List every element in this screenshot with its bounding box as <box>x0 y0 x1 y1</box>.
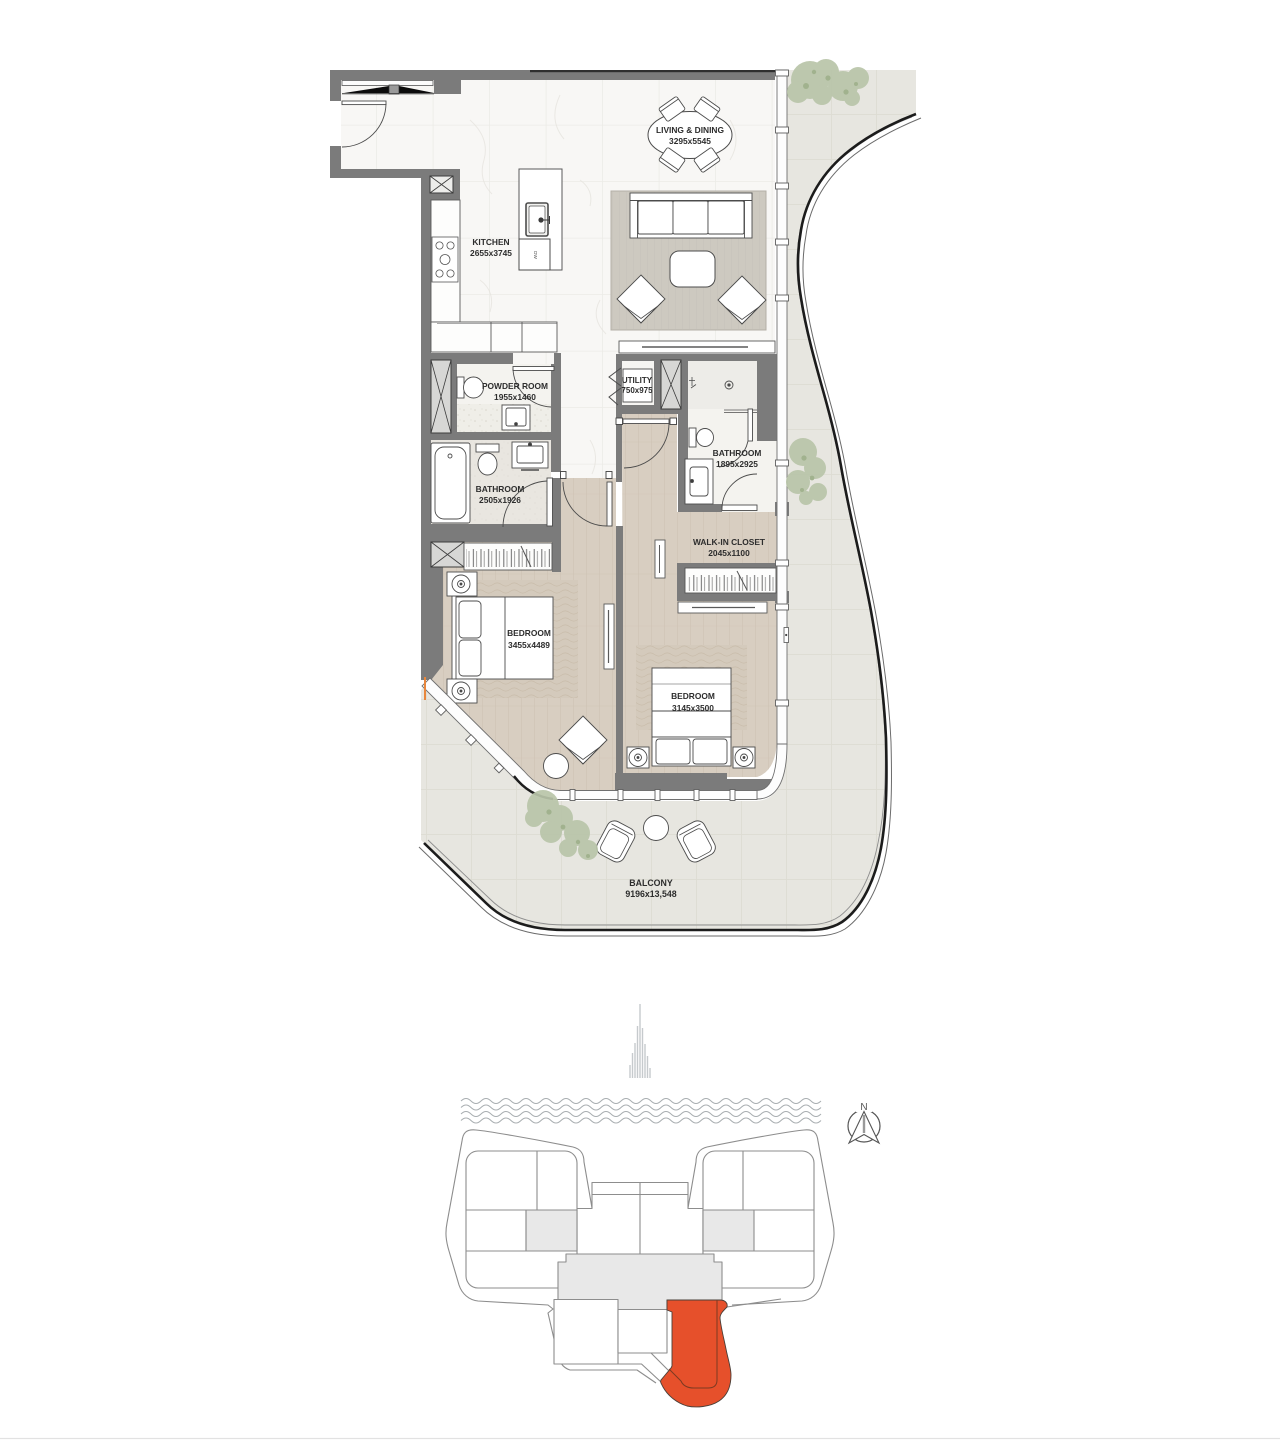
svg-text:750x975: 750x975 <box>621 386 653 395</box>
svg-text:3455x4489: 3455x4489 <box>508 640 550 650</box>
svg-text:BATHROOM: BATHROOM <box>476 484 525 494</box>
svg-text:DW: DW <box>533 251 538 259</box>
svg-text:WALK-IN CLOSET: WALK-IN CLOSET <box>693 537 766 547</box>
svg-text:9196x13,548: 9196x13,548 <box>625 889 676 899</box>
svg-text:3145x3500: 3145x3500 <box>672 703 714 713</box>
svg-text:BEDROOM: BEDROOM <box>671 691 715 701</box>
svg-text:2045x1100: 2045x1100 <box>708 548 750 558</box>
svg-text:2655x3745: 2655x3745 <box>470 248 512 258</box>
svg-text:3295x5545: 3295x5545 <box>669 136 711 146</box>
svg-text:BEDROOM: BEDROOM <box>507 628 551 638</box>
svg-text:1955x1460: 1955x1460 <box>494 392 536 402</box>
svg-text:POWDER ROOM: POWDER ROOM <box>482 381 548 391</box>
svg-text:BALCONY: BALCONY <box>629 878 673 888</box>
svg-text:KITCHEN: KITCHEN <box>472 237 509 247</box>
svg-text:UTILITY: UTILITY <box>622 376 653 385</box>
svg-text:LIVING & DINING: LIVING & DINING <box>656 125 724 135</box>
svg-text:2505x1926: 2505x1926 <box>479 495 521 505</box>
svg-text:1895x2925: 1895x2925 <box>716 459 758 469</box>
svg-text:BATHROOM: BATHROOM <box>713 448 762 458</box>
